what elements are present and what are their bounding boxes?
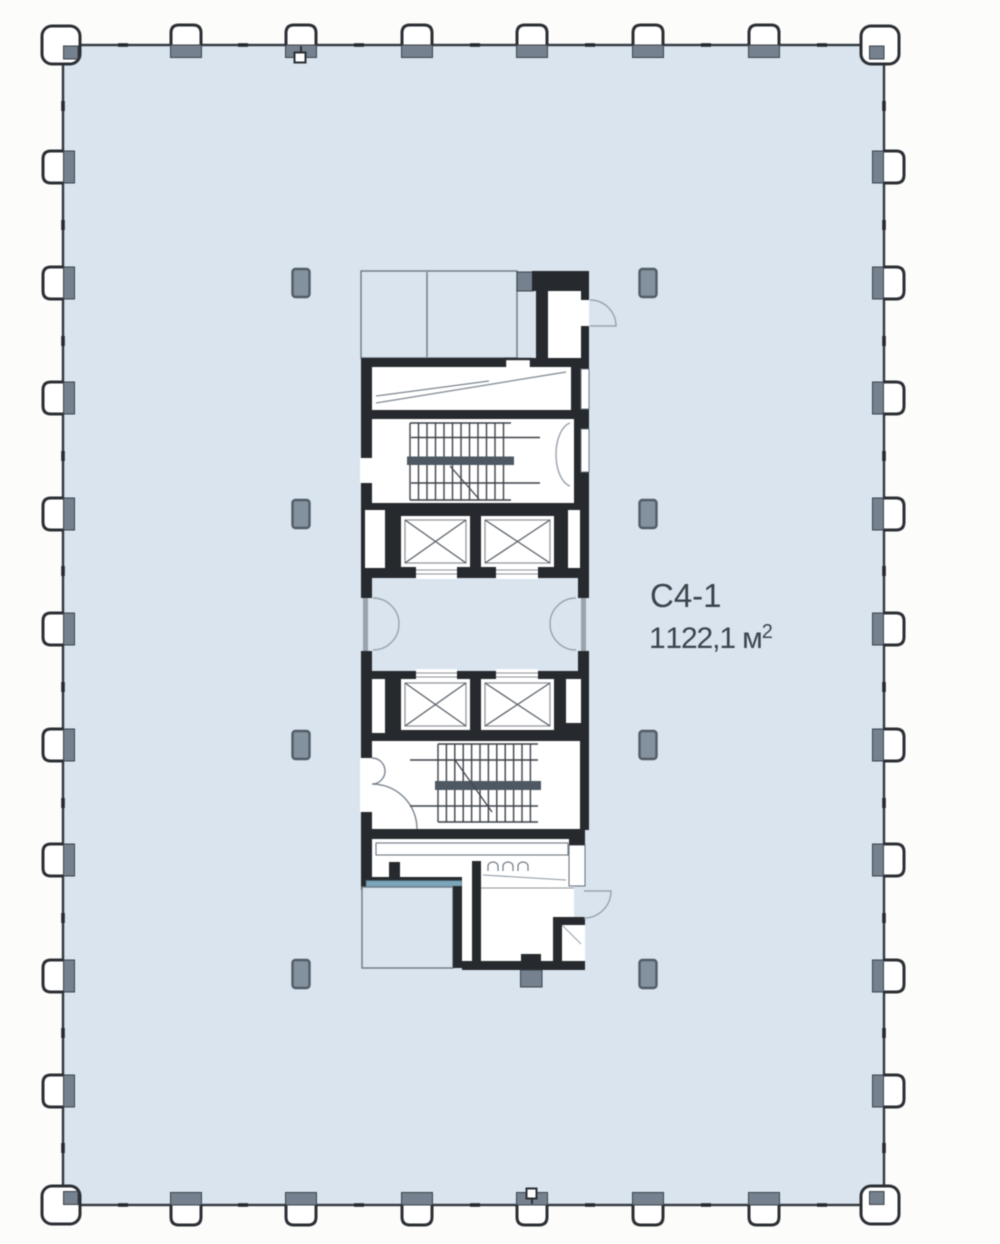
svg-text:C4-1: C4-1: [650, 577, 722, 614]
svg-text:1122,1 м2: 1122,1 м2: [649, 621, 773, 655]
